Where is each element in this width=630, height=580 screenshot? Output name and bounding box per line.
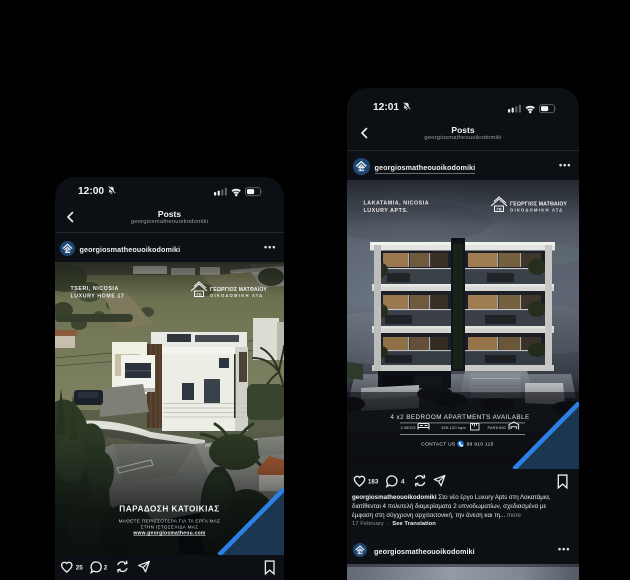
svg-text:99 910 115: 99 910 115: [467, 441, 494, 447]
svg-text:ΓΕΩΡΓΙΟΣ ΜΑΤΘΑΙΟΥ: ΓΕΩΡΓΙΟΣ ΜΑΤΘΑΙΟΥ: [210, 287, 267, 293]
svg-text:ΜΑΘΕΤΕ ΠΕΡΙΣΣΟΤΕΡΑ ΓΙΑ ΤΑ ΕΡΓΑ: ΜΑΘΕΤΕ ΠΕΡΙΣΣΟΤΕΡΑ ΓΙΑ ΤΑ ΕΡΓΑ ΜΑΣ: [119, 519, 221, 524]
svg-text:25: 25: [76, 564, 84, 571]
svg-text:159-120 sqm: 159-120 sqm: [441, 425, 466, 430]
svg-text:ΓΜ: ΓΜ: [359, 167, 364, 171]
svg-text:ΟΙΚΟΔΟΜΙΚΗ ΛΤΔ: ΟΙΚΟΔΟΜΙΚΗ ΛΤΔ: [510, 207, 563, 212]
svg-text:183: 183: [368, 478, 379, 485]
svg-text:2-BEDS: 2-BEDS: [401, 425, 416, 430]
svg-text:ΣΤΗΝ ΙΣΤΟΣΕΛΙΔΑ ΜΑΣ: ΣΤΗΝ ΙΣΤΟΣΕΛΙΔΑ ΜΑΣ: [141, 524, 199, 529]
svg-text:LUXURY HOME 17: LUXURY HOME 17: [71, 294, 125, 300]
svg-text:CONTACT US: CONTACT US: [421, 441, 456, 447]
svg-text:4 x2 BEDROOM APARTMENTS AVAILA: 4 x2 BEDROOM APARTMENTS AVAILABLE: [390, 414, 529, 421]
svg-text:2: 2: [104, 564, 108, 571]
svg-text:ΓΕΩΡΓΙΟΣ ΜΑΤΘΑΙΟΥ: ΓΕΩΡΓΙΟΣ ΜΑΤΘΑΙΟΥ: [510, 201, 567, 207]
svg-text:LUXURY APTS.: LUXURY APTS.: [364, 208, 409, 214]
svg-text:ΟΙΚΟΔΟΜΙΚΗ ΛΤΔ: ΟΙΚΟΔΟΜΙΚΗ ΛΤΔ: [210, 293, 263, 298]
svg-text:ΠΑΡΑΔΟΣΗ ΚΑΤΟΙΚΙΑΣ: ΠΑΡΑΔΟΣΗ ΚΑΤΟΙΚΙΑΣ: [119, 505, 219, 514]
svg-text:LAKATAMIA, NICOSIA: LAKATAMIA, NICOSIA: [364, 200, 430, 206]
svg-text:ΓΜ: ΓΜ: [357, 550, 362, 554]
svg-text:4: 4: [401, 478, 405, 485]
svg-text:ΓΜ: ΓΜ: [497, 207, 502, 211]
svg-text:ΓΜ: ΓΜ: [65, 249, 70, 253]
svg-text:www.georgiosmatheou.com: www.georgiosmatheou.com: [132, 530, 206, 536]
svg-text:PARKING: PARKING: [488, 425, 507, 430]
svg-text:ΓΜ: ΓΜ: [197, 292, 202, 296]
svg-text:TSERI, NICOSIA: TSERI, NICOSIA: [71, 286, 119, 292]
